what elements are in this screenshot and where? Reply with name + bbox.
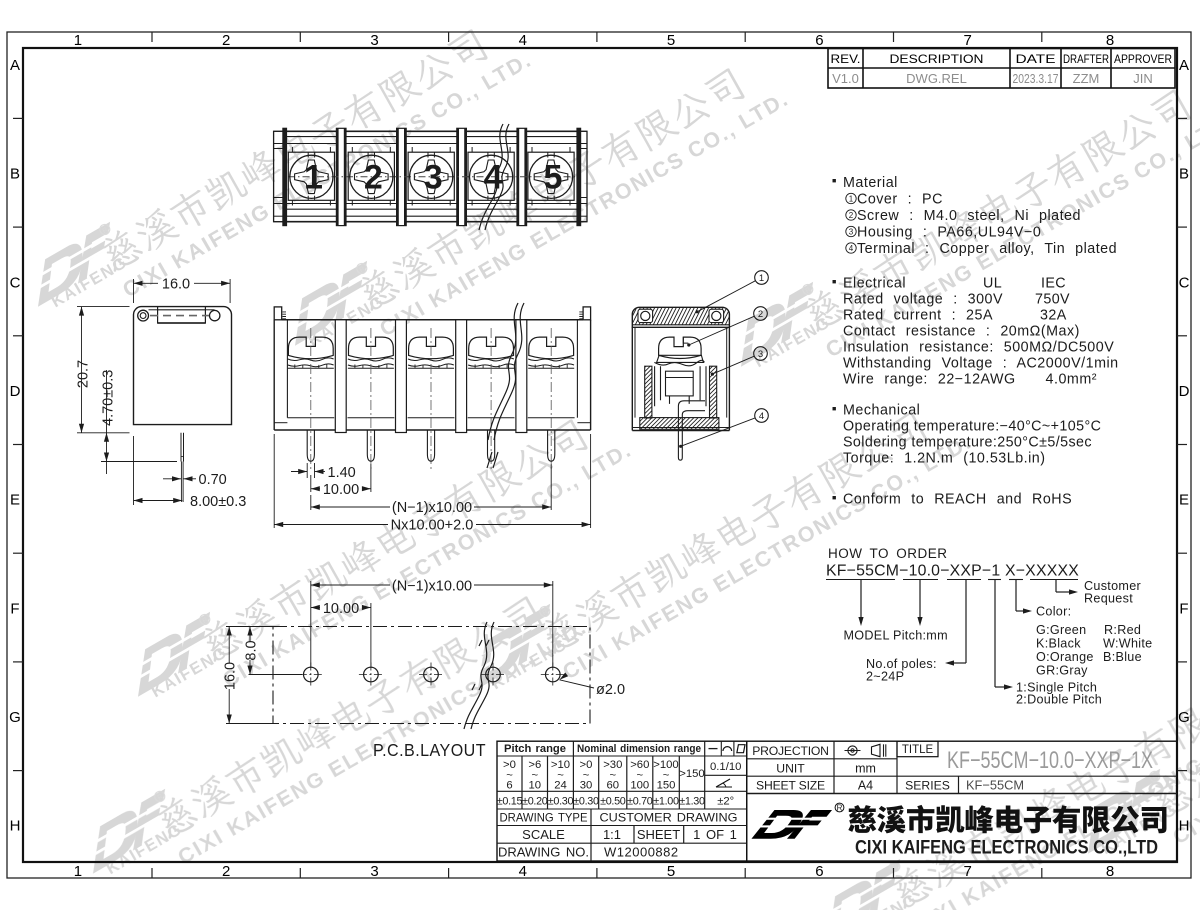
svg-text:6: 6 xyxy=(815,863,823,880)
svg-text:IEC: IEC xyxy=(1041,276,1066,292)
svg-text:10.00: 10.00 xyxy=(323,482,359,498)
svg-text:±0.15: ±0.15 xyxy=(497,796,523,808)
svg-text:Mechanical: Mechanical xyxy=(843,403,920,419)
svg-text:ZZM: ZZM xyxy=(1073,71,1100,86)
svg-text:0.1/10: 0.1/10 xyxy=(710,761,741,773)
svg-text:7: 7 xyxy=(964,32,972,49)
svg-text:2: 2 xyxy=(222,863,230,880)
svg-text:±0.50: ±0.50 xyxy=(600,796,626,808)
svg-text:6: 6 xyxy=(815,32,823,49)
svg-text:Color:: Color: xyxy=(1036,605,1071,619)
svg-text:Pitch range: Pitch range xyxy=(504,743,566,755)
svg-text:10.00: 10.00 xyxy=(323,601,359,617)
svg-text:1: 1 xyxy=(74,32,82,49)
svg-text:±0.30: ±0.30 xyxy=(573,796,599,808)
svg-text:B: B xyxy=(10,166,20,183)
svg-text:3: 3 xyxy=(849,227,854,236)
svg-text:A: A xyxy=(1179,57,1189,74)
svg-text:±2°: ±2° xyxy=(717,796,734,808)
svg-text:4: 4 xyxy=(484,159,503,197)
svg-text:7: 7 xyxy=(964,863,972,880)
svg-text:UNIT: UNIT xyxy=(776,761,805,775)
svg-text:ø2.0: ø2.0 xyxy=(596,682,625,698)
svg-text:8: 8 xyxy=(1106,32,1114,49)
svg-text:750V: 750V xyxy=(1035,292,1070,308)
svg-text:G:Green: G:Green xyxy=(1036,623,1086,637)
svg-text:Rated current : 25A: Rated current : 25A xyxy=(843,308,993,324)
svg-text:3: 3 xyxy=(370,863,378,880)
svg-text:5: 5 xyxy=(544,159,563,197)
svg-text:±0.20: ±0.20 xyxy=(522,796,548,808)
svg-text:4: 4 xyxy=(759,411,764,422)
svg-text:24: 24 xyxy=(554,780,567,792)
svg-text:4.70±0.3: 4.70±0.3 xyxy=(101,370,117,426)
svg-text:4: 4 xyxy=(849,244,854,253)
svg-text:Insulation resistance: 500MΩ/D: Insulation resistance: 500MΩ/DC500V xyxy=(843,340,1114,356)
svg-text:Nominal dimension range: Nominal dimension range xyxy=(577,743,701,755)
svg-text:2: 2 xyxy=(758,309,763,320)
svg-text:Material: Material xyxy=(843,175,898,191)
svg-text:Soldering temperature:250°C±5/: Soldering temperature:250°C±5/5sec xyxy=(843,435,1092,451)
svg-text:4: 4 xyxy=(519,863,527,880)
svg-text:Wire range: 22−12AWG 4.0mm²: Wire range: 22−12AWG 4.0mm² xyxy=(843,372,1097,388)
svg-text:A4: A4 xyxy=(858,779,873,793)
svg-text:E: E xyxy=(10,492,20,509)
svg-text:TITLE: TITLE xyxy=(902,744,934,756)
svg-text:Withstanding Voltage : AC2000V: Withstanding Voltage : AC2000V/1min xyxy=(843,356,1119,372)
svg-text:Operating temperature:−40°C~+1: Operating temperature:−40°C~+105°C xyxy=(843,419,1101,435)
svg-text:Torque: 1.2N.m (10.53Lb.in): Torque: 1.2N.m (10.53Lb.in) xyxy=(843,451,1046,467)
svg-text:V1.0: V1.0 xyxy=(832,71,859,86)
svg-text:60: 60 xyxy=(607,780,620,792)
svg-text:JIN: JIN xyxy=(1133,71,1153,86)
svg-text:W12000882: W12000882 xyxy=(604,845,679,860)
svg-text:R:Red: R:Red xyxy=(1104,623,1141,637)
svg-text:K:Black: K:Black xyxy=(1036,637,1081,651)
svg-text:KF−55CM−10.0−XXP−1 X−XXXXX: KF−55CM−10.0−XXP−1 X−XXXXX xyxy=(826,563,1079,580)
svg-text:F: F xyxy=(1179,600,1188,617)
svg-text:PROJECTION: PROJECTION xyxy=(752,744,829,758)
svg-text:Conform to REACH and RoHS: Conform to REACH and RoHS xyxy=(843,492,1072,508)
svg-text:3: 3 xyxy=(370,32,378,49)
svg-text:DRAWING NO.: DRAWING NO. xyxy=(498,845,589,860)
svg-text:SHEET: SHEET xyxy=(637,827,680,842)
svg-text:SERIES: SERIES xyxy=(905,779,950,793)
svg-text:GR:Gray: GR:Gray xyxy=(1036,664,1088,678)
svg-text:2: 2 xyxy=(222,32,230,49)
svg-text:0.70: 0.70 xyxy=(199,472,227,488)
svg-text:H: H xyxy=(1179,818,1190,835)
svg-text:A: A xyxy=(10,57,20,74)
svg-text:DRAWING TYPE: DRAWING TYPE xyxy=(500,811,588,825)
svg-text:8.0: 8.0 xyxy=(243,640,259,660)
svg-text:6: 6 xyxy=(506,780,512,792)
svg-text:2~24P: 2~24P xyxy=(866,670,904,684)
svg-text:±0.70: ±0.70 xyxy=(627,796,653,808)
svg-text:1: 1 xyxy=(849,194,854,203)
svg-text:Pitch:mm: Pitch:mm xyxy=(893,629,948,643)
svg-text:SCALE: SCALE xyxy=(522,827,565,842)
svg-text:Cover : PC: Cover : PC xyxy=(857,192,943,208)
svg-text:D: D xyxy=(1179,383,1190,400)
svg-text:Terminal : Copper alloy, Tin p: Terminal : Copper alloy, Tin plated xyxy=(857,241,1117,257)
svg-text:1.40: 1.40 xyxy=(328,465,356,481)
svg-text:1 OF 1: 1 OF 1 xyxy=(693,827,737,842)
svg-text:DRAFTER: DRAFTER xyxy=(1063,52,1109,66)
svg-text:2: 2 xyxy=(364,159,383,197)
svg-text:UL: UL xyxy=(983,276,1002,292)
svg-text:G: G xyxy=(1178,709,1190,726)
svg-text:P.C.B.LAYOUT: P.C.B.LAYOUT xyxy=(373,740,486,760)
svg-text:5: 5 xyxy=(667,32,675,49)
svg-text:REV.: REV. xyxy=(831,52,861,66)
svg-text:4: 4 xyxy=(519,32,527,49)
svg-text:Screw : M4.0 steel, Ni plated: Screw : M4.0 steel, Ni plated xyxy=(857,208,1081,224)
svg-text:C: C xyxy=(1179,274,1190,291)
svg-text:1:1: 1:1 xyxy=(603,827,621,842)
svg-text:Contact resistance : 20mΩ(Max): Contact resistance : 20mΩ(Max) xyxy=(843,324,1080,340)
svg-text:8.00±0.3: 8.00±0.3 xyxy=(190,494,246,510)
svg-text:SHEET SIZE: SHEET SIZE xyxy=(756,779,825,793)
svg-text:8: 8 xyxy=(1106,863,1114,880)
svg-text:APPROVER: APPROVER xyxy=(1114,52,1172,66)
svg-text:H: H xyxy=(10,818,21,835)
svg-text:R: R xyxy=(837,804,843,813)
svg-text:5: 5 xyxy=(667,863,675,880)
svg-text:B:Blue: B:Blue xyxy=(1103,650,1142,664)
svg-text:Housing : PA66,UL94V−0: Housing : PA66,UL94V−0 xyxy=(857,225,1041,241)
svg-text:±0.30: ±0.30 xyxy=(548,796,574,808)
svg-text:D: D xyxy=(10,383,21,400)
svg-text:±1.00: ±1.00 xyxy=(653,796,679,808)
svg-text:Electrical: Electrical xyxy=(843,276,906,292)
svg-text:C: C xyxy=(10,274,21,291)
svg-text:CUSTOMER DRAWING: CUSTOMER DRAWING xyxy=(600,811,738,825)
svg-text:1: 1 xyxy=(759,273,764,284)
svg-text:DWG.REL: DWG.REL xyxy=(906,71,967,86)
svg-text:±1.30: ±1.30 xyxy=(679,796,705,808)
svg-text:(N−1)x10.00: (N−1)x10.00 xyxy=(392,500,472,516)
svg-text:>150: >150 xyxy=(679,768,704,780)
svg-text:2: 2 xyxy=(849,211,854,220)
svg-text:KF−55CM−10.0−XXP−1X: KF−55CM−10.0−XXP−1X xyxy=(947,747,1153,774)
svg-text:Nx10.00+2.0: Nx10.00+2.0 xyxy=(391,518,474,534)
svg-text:1: 1 xyxy=(74,863,82,880)
svg-text:2023.3.17: 2023.3.17 xyxy=(1013,71,1059,86)
svg-text:16.0: 16.0 xyxy=(223,662,239,690)
svg-text:1: 1 xyxy=(304,159,323,197)
svg-text:CIXI KAIFENG ELECTRONICS CO.,L: CIXI KAIFENG ELECTRONICS CO.,LTD xyxy=(855,837,1158,859)
svg-text:30: 30 xyxy=(580,780,593,792)
svg-text:3: 3 xyxy=(758,349,763,360)
svg-text:F: F xyxy=(10,600,19,617)
svg-text:100: 100 xyxy=(630,780,649,792)
svg-text:E: E xyxy=(1179,492,1189,509)
svg-text:mm: mm xyxy=(855,761,876,775)
svg-text:DESCRIPTION: DESCRIPTION xyxy=(890,52,984,66)
svg-text:HOW TO ORDER: HOW TO ORDER xyxy=(828,546,948,561)
svg-text:G: G xyxy=(9,709,21,726)
svg-text:10: 10 xyxy=(529,780,542,792)
svg-text:MODEL: MODEL xyxy=(844,629,890,643)
svg-text:16.0: 16.0 xyxy=(162,276,190,292)
svg-text:150: 150 xyxy=(657,780,676,792)
svg-text:B: B xyxy=(1179,166,1189,183)
svg-text:(N−1)x10.00: (N−1)x10.00 xyxy=(392,578,472,594)
svg-text:20.7: 20.7 xyxy=(76,360,92,388)
svg-text:KF−55CM: KF−55CM xyxy=(966,778,1024,793)
svg-text:32A: 32A xyxy=(1040,308,1067,324)
svg-text:Request: Request xyxy=(1084,592,1133,606)
svg-text:O:Orange: O:Orange xyxy=(1036,650,1094,664)
svg-text:Rated voltage : 300V: Rated voltage : 300V xyxy=(843,292,1003,308)
svg-text:2:Double Pitch: 2:Double Pitch xyxy=(1016,693,1102,707)
svg-text:DATE: DATE xyxy=(1016,52,1056,66)
svg-text:W:White: W:White xyxy=(1103,637,1152,651)
svg-text:3: 3 xyxy=(424,159,443,197)
